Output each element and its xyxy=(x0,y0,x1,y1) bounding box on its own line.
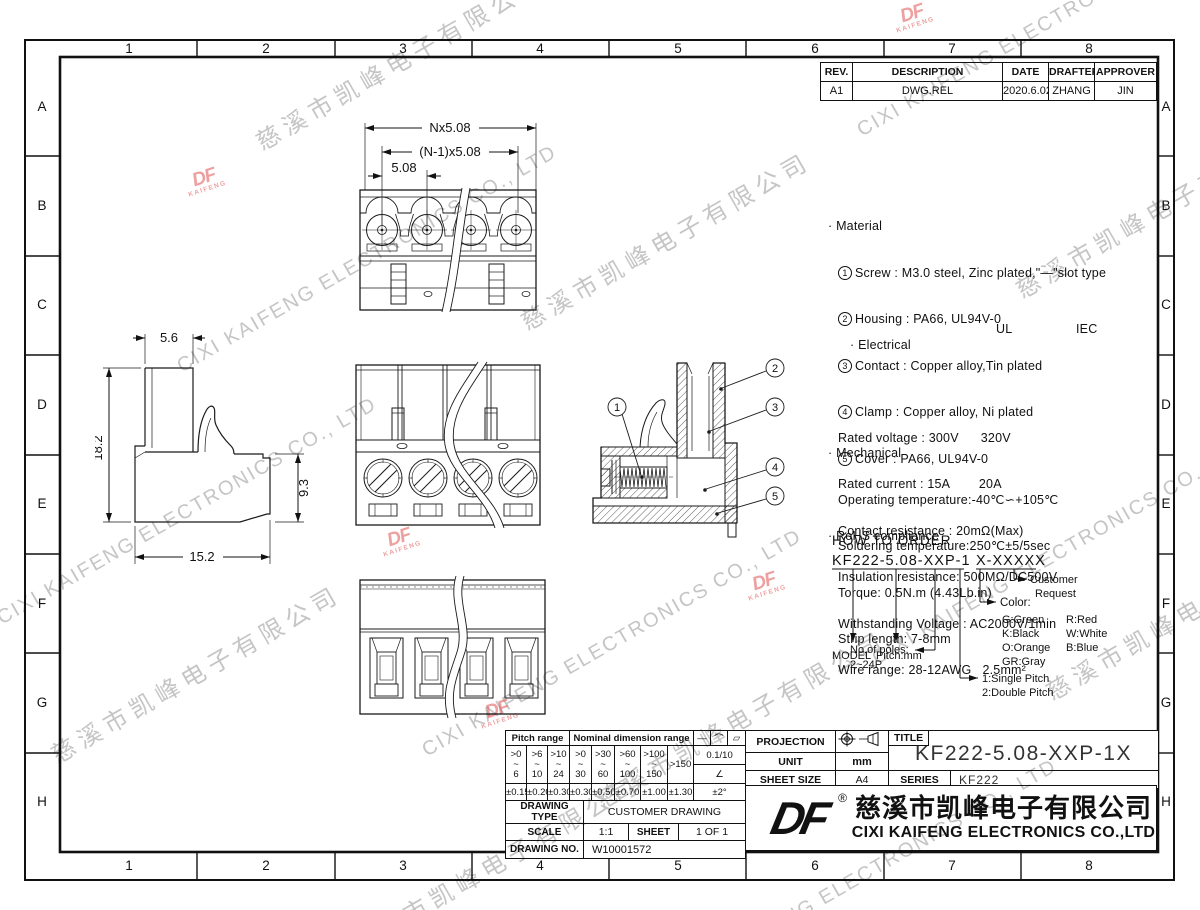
drafter-value: ZHANG xyxy=(1049,82,1095,101)
flatness-symbol: ▱ xyxy=(728,731,746,746)
tolerance-cell: ±0.15 xyxy=(506,784,527,801)
nominal-range-header: Nominal dimension range xyxy=(570,731,694,746)
part-number-callout: 2 xyxy=(772,363,778,375)
grid-col-label: 5 xyxy=(674,41,682,56)
material-title: Material xyxy=(836,219,882,233)
grid-col-label: 8 xyxy=(1085,858,1093,873)
drawing-no-value: W10001572 xyxy=(584,841,746,859)
straightness-symbol: — xyxy=(694,731,711,746)
range-cell: >150 xyxy=(668,746,694,784)
order-code-left: KF222-5.08-XXP-1 xyxy=(832,553,971,569)
grid-col-label: 6 xyxy=(811,41,819,56)
part-number-callout: 1 xyxy=(614,402,620,414)
part-number-callout: 5 xyxy=(772,491,778,503)
grid-row-label: D xyxy=(37,397,47,412)
company-logo: DF ® xyxy=(746,795,851,841)
unit-value: mm xyxy=(836,753,889,771)
double-pitch-option: 2:Double Pitch xyxy=(982,687,1054,699)
poles-range: 2~24P xyxy=(850,659,882,671)
drawing-no-label: DRAWING NO. xyxy=(506,841,584,859)
unit-label: UNIT xyxy=(746,753,836,771)
date-value: 2020.6.02 xyxy=(1003,82,1049,101)
df-logo-text: DF xyxy=(767,795,830,841)
poles-label: No.of poles: xyxy=(850,644,909,656)
angle-tolerance: ±2° xyxy=(694,784,746,801)
grid-col-label: 2 xyxy=(262,41,270,56)
color-label: Color: xyxy=(1000,597,1031,609)
customer-request-label: Request xyxy=(1035,588,1076,600)
title-label: TITLE xyxy=(889,731,930,747)
rev-value: A1 xyxy=(821,82,853,101)
grid-col-label: 3 xyxy=(399,858,407,873)
grid-col-label: 6 xyxy=(811,858,819,873)
grid-row-label: H xyxy=(1161,794,1171,809)
tolerance-cell: ±0.30 xyxy=(548,784,570,801)
circled-number: 1 xyxy=(838,266,852,280)
tolerance-table: Pitch range Nominal dimension range — ⌒ … xyxy=(505,730,746,801)
drawing-info-table: DRAWING TYPE CUSTOMER DRAWING SCALE 1:1 … xyxy=(505,800,746,859)
grid-col-label: 4 xyxy=(536,858,544,873)
range-cell: >100 ~ 150 xyxy=(641,746,668,784)
company-block: DF ® 慈溪市凯峰电子有限公司 CIXI KAIFENG ELECTRONIC… xyxy=(745,785,1157,851)
tolerance-cell: ±0.30 xyxy=(570,784,592,801)
range-cell: >60 ~ 100 xyxy=(615,746,641,784)
bullet: · xyxy=(850,338,854,352)
break-band xyxy=(444,362,504,528)
color-option: GR:Gray xyxy=(1002,656,1046,668)
projection-label: PROJECTION xyxy=(746,731,836,753)
grid-row-label: E xyxy=(37,496,46,511)
grid-col-label: 3 xyxy=(399,41,407,56)
grid-col-label: 8 xyxy=(1085,41,1093,56)
side-view-drawing: 5.6 18.2 9.3 15.2 xyxy=(95,328,313,580)
grid-col-label: 5 xyxy=(674,858,682,873)
description-value: DWG.REL xyxy=(853,82,1003,101)
dim-pitch: 5.08 xyxy=(391,160,416,175)
section-view-drawing: 1 2 3 4 5 xyxy=(588,348,793,543)
grid-col-label: 4 xyxy=(536,41,544,56)
company-name-en: CIXI KAIFENG ELECTRONICS CO.,LTD xyxy=(851,823,1156,843)
drawing-sheet: 1 2 3 4 5 6 7 8 1 2 3 4 5 6 7 8 A B C D … xyxy=(0,0,1200,910)
pitch-range-header: Pitch range xyxy=(506,731,570,746)
grid-col-label: 1 xyxy=(125,41,133,56)
tolerance-cell: ±0.70 xyxy=(615,784,641,801)
revision-row: A1 DWG.REL 2020.6.02 ZHANG JIN xyxy=(821,82,1157,101)
projection-symbol-cell xyxy=(836,731,889,753)
color-option: K:Black xyxy=(1002,628,1040,640)
straightness-tolerance: 0.1/10 xyxy=(694,746,746,765)
dim-body-height: 9.3 xyxy=(296,479,311,497)
date-header: DATE xyxy=(1003,63,1049,82)
dim-total-height: 18.2 xyxy=(95,435,105,460)
grid-col-label: 1 xyxy=(125,858,133,873)
registered-mark: ® xyxy=(838,791,847,805)
rev-header: REV. xyxy=(821,63,853,82)
front-view-drawing xyxy=(350,360,550,536)
grid-row-label: A xyxy=(1161,99,1170,114)
grid-row-label: G xyxy=(37,695,48,710)
drawing-title: KF222-5.08-XXP-1X xyxy=(889,736,1158,766)
grid-row-label: F xyxy=(1162,596,1170,611)
part-number-callout: 4 xyxy=(772,462,778,474)
top-view-drawing: Nx5.08 (N-1)x5.08 5.08 xyxy=(338,118,558,316)
grid-row-label: G xyxy=(1161,695,1172,710)
first-angle-projection-icon xyxy=(837,731,887,747)
description-header: DESCRIPTION xyxy=(853,63,1003,82)
approver-value: JIN xyxy=(1095,82,1157,101)
approver-header: APPROVER xyxy=(1095,63,1157,82)
bottom-view-drawing xyxy=(353,572,553,722)
iec-column-header: IEC xyxy=(1076,322,1097,338)
scale-label: SCALE xyxy=(506,824,584,841)
ul-column-header: UL xyxy=(996,322,1012,338)
drawing-type-label: DRAWING TYPE xyxy=(506,801,584,824)
grid-col-label: 7 xyxy=(948,858,956,873)
range-cell: >30 ~ 60 xyxy=(592,746,615,784)
break-band xyxy=(445,576,467,718)
grid-row-label: D xyxy=(1161,397,1171,412)
range-cell: >6 ~ 10 xyxy=(527,746,548,784)
angle-symbol: ∠ xyxy=(694,765,746,784)
dim-n1-pitch: (N-1)x5.08 xyxy=(419,144,480,159)
electrical-title: Electrical xyxy=(858,338,911,352)
color-option: G:Green xyxy=(1002,614,1044,626)
tolerance-cell: ±1.00 xyxy=(641,784,668,801)
title-block-table: PROJECTION TITLE KF222-5.08-XX xyxy=(745,730,1159,789)
drawing-type-value: CUSTOMER DRAWING xyxy=(584,801,746,824)
tolerance-cell: ±0.20 xyxy=(527,784,548,801)
color-option: W:White xyxy=(1066,628,1107,640)
title-cell: TITLE KF222-5.08-XXP-1X xyxy=(889,731,1159,771)
range-cell: >0 ~ 30 xyxy=(570,746,592,784)
tolerance-cell: ±1.30 xyxy=(668,784,694,801)
grid-col-label: 7 xyxy=(948,41,956,56)
sheet-label: SHEET xyxy=(629,824,679,841)
mechanical-title: Mechanical xyxy=(836,446,901,460)
grid-row-label: A xyxy=(37,99,46,114)
drafter-header: DRAFTER xyxy=(1049,63,1095,82)
dim-n-pitch: Nx5.08 xyxy=(429,120,470,135)
tolerance-cell: ±0.50 xyxy=(592,784,615,801)
arc-symbol: ⌒ xyxy=(711,731,728,746)
range-cell: >0 ~ 6 xyxy=(506,746,527,784)
color-option: R:Red xyxy=(1066,614,1097,626)
grid-row-label: C xyxy=(1161,297,1171,312)
grid-row-label: B xyxy=(1161,198,1170,213)
grid-row-label: B xyxy=(37,198,46,213)
grid-row-label: H xyxy=(37,794,47,809)
note-line: 1Screw : M3.0 steel, Zinc plated,"—"slot… xyxy=(828,266,1106,282)
bullet: · xyxy=(828,219,832,233)
order-code-right: X-XXXXX xyxy=(976,553,1046,569)
grid-row-label: C xyxy=(37,297,47,312)
single-pitch-option: 1:Single Pitch xyxy=(982,673,1049,685)
how-to-order-diagram: HOW TO ORDER KF222-5.08-XXP-1 X-XXXXX MO… xyxy=(830,532,1160,702)
scale-value: 1:1 xyxy=(584,824,629,841)
how-to-order-title: HOW TO ORDER xyxy=(832,533,952,548)
dim-top-width: 5.6 xyxy=(160,330,178,345)
revision-table: REV. DESCRIPTION DATE DRAFTER APPROVER A… xyxy=(820,62,1157,101)
grid-col-label: 2 xyxy=(262,858,270,873)
company-name-cn: 慈溪市凯峰电子有限公司 xyxy=(851,793,1156,823)
bullet: · xyxy=(828,446,832,460)
grid-row-label: F xyxy=(38,596,46,611)
part-number-callout: 3 xyxy=(772,402,778,414)
range-cell: >10 ~ 24 xyxy=(548,746,570,784)
grid-row-label: E xyxy=(1161,496,1170,511)
color-option: B:Blue xyxy=(1066,642,1098,654)
sheet-value: 1 OF 1 xyxy=(679,824,746,841)
dim-bottom-width: 15.2 xyxy=(189,549,214,564)
color-option: O:Orange xyxy=(1002,642,1050,654)
customer-request-label: Customer xyxy=(1030,574,1078,586)
company-names: 慈溪市凯峰电子有限公司 CIXI KAIFENG ELECTRONICS CO.… xyxy=(851,793,1156,843)
